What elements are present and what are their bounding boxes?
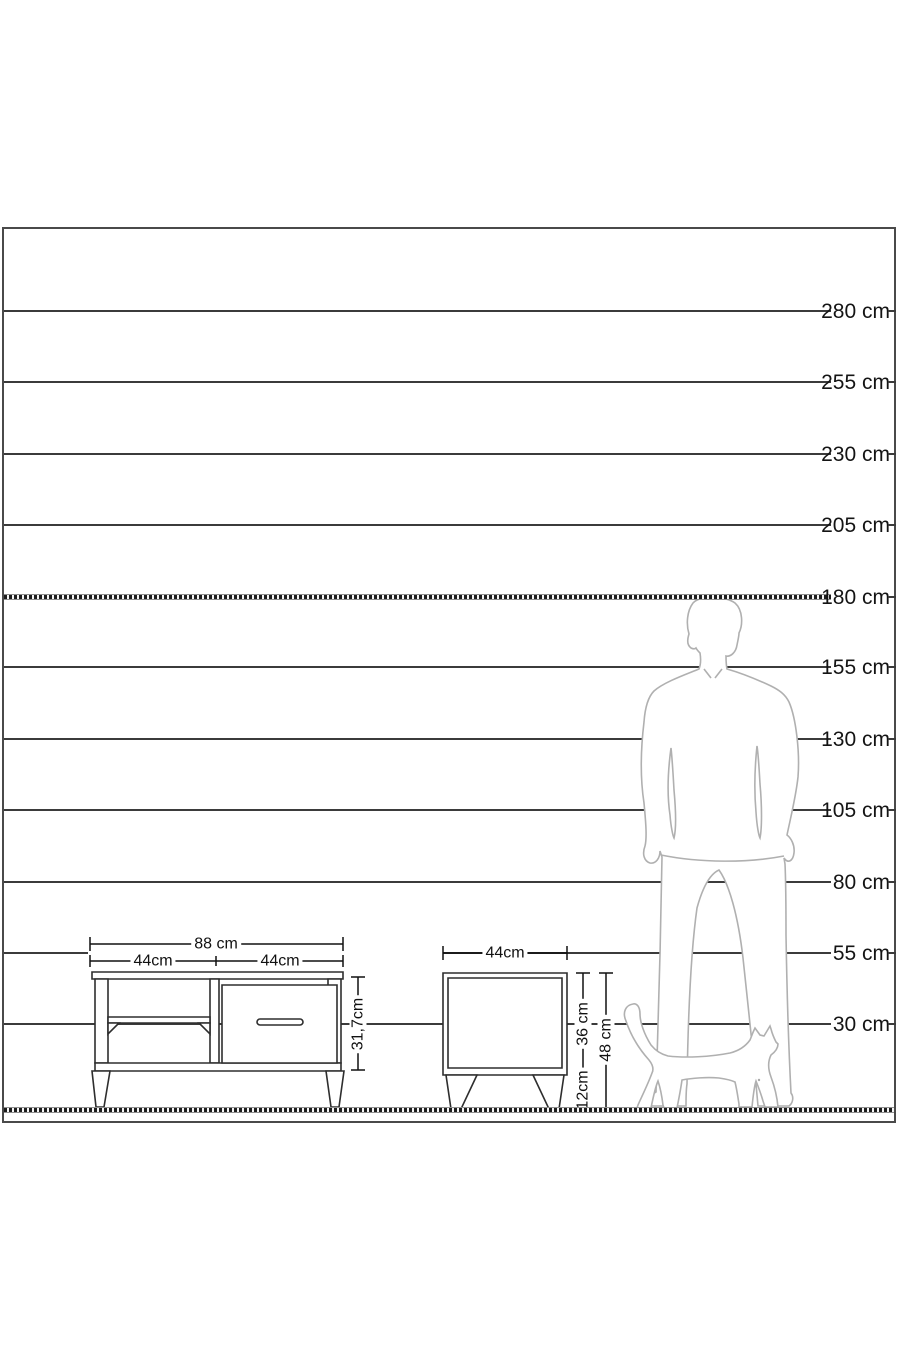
dim-label-44-left: 44cm bbox=[130, 953, 175, 970]
diagram-artwork bbox=[0, 0, 900, 1350]
ruler-label-30: 30 cm bbox=[833, 1013, 890, 1036]
ruler-dash-280 bbox=[888, 310, 896, 312]
ruler-dash-155 bbox=[888, 666, 896, 668]
nightstand-leg-left bbox=[446, 1075, 477, 1109]
tv-stand-left-panel bbox=[95, 979, 108, 1063]
tv-stand-leg-right bbox=[326, 1071, 344, 1107]
dim-label-48: 48 cm bbox=[598, 1015, 615, 1065]
height-reference-line-180 bbox=[4, 594, 831, 600]
tv-stand bbox=[92, 972, 344, 1107]
dim-label-44-nightstand: 44cm bbox=[482, 945, 527, 962]
ground-line bbox=[4, 1107, 894, 1113]
dim-label-44-right: 44cm bbox=[257, 953, 302, 970]
ruler-label-155: 155 cm bbox=[821, 656, 890, 679]
man-silhouette bbox=[641, 597, 798, 1106]
diagram-canvas: 280 cm 255 cm 230 cm 205 cm 180 cm 155 c… bbox=[0, 0, 900, 1350]
ruler-dash-230 bbox=[888, 453, 896, 455]
dim-label-88: 88 cm bbox=[191, 936, 241, 953]
tv-stand-divider bbox=[210, 979, 219, 1063]
tv-stand-drawer-handle bbox=[257, 1019, 303, 1025]
ruler-dash-255 bbox=[888, 381, 896, 383]
ruler-dash-80 bbox=[888, 881, 896, 883]
ruler-label-255: 255 cm bbox=[821, 371, 890, 394]
nightstand-face-panel bbox=[448, 978, 562, 1068]
ruler-dash-105 bbox=[888, 809, 896, 811]
dim-label-36: 36 cm bbox=[575, 999, 592, 1049]
ruler-dash-130 bbox=[888, 738, 896, 740]
tv-stand-bottom-panel bbox=[95, 1063, 341, 1071]
tv-stand-top-panel bbox=[92, 972, 343, 979]
nightstand bbox=[443, 973, 567, 1109]
ruler-label-80: 80 cm bbox=[833, 871, 890, 894]
tv-stand-shelf-brace-left bbox=[108, 1023, 119, 1034]
ruler-dash-55 bbox=[888, 952, 896, 954]
ruler-label-280: 280 cm bbox=[821, 300, 890, 323]
nightstand-leg-right bbox=[533, 1075, 564, 1109]
ruler-dash-180 bbox=[888, 596, 896, 598]
man-outline bbox=[641, 597, 798, 1106]
tv-stand-shelf bbox=[108, 1017, 210, 1023]
ruler-label-105: 105 cm bbox=[821, 799, 890, 822]
ruler-dash-205 bbox=[888, 524, 896, 526]
ruler-label-230: 230 cm bbox=[821, 443, 890, 466]
dim-label-31-7: 31,7cm bbox=[350, 995, 367, 1053]
tv-stand-shelf-brace-right bbox=[199, 1023, 210, 1034]
cat-fur-mark bbox=[758, 1079, 760, 1081]
dim-label-12: 12cm bbox=[575, 1067, 592, 1112]
ruler-label-205: 205 cm bbox=[821, 514, 890, 537]
dim-line-44-44 bbox=[90, 955, 343, 967]
ruler-label-130: 130 cm bbox=[821, 728, 890, 751]
ruler-label-180: 180 cm bbox=[821, 586, 890, 609]
ruler-label-55: 55 cm bbox=[833, 942, 890, 965]
tv-stand-leg-left bbox=[92, 1071, 110, 1107]
ruler-dash-30 bbox=[888, 1023, 896, 1025]
